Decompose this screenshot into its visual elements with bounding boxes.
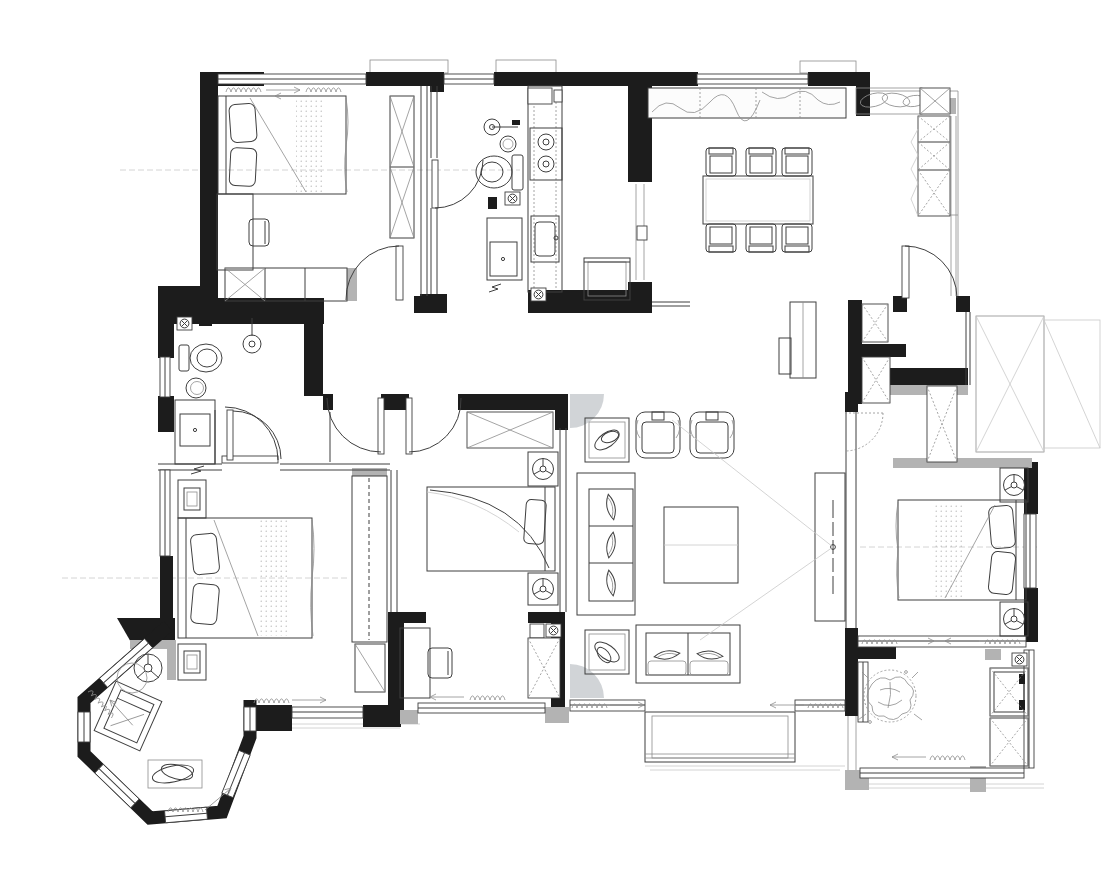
window-bedroom-tl [218,74,366,84]
floor-drain-icon [177,317,192,330]
shoe-cabinet-x-2 [862,357,890,403]
window-bath-left [160,357,170,397]
hallway-closet-x [467,412,553,448]
master-closet-x [927,386,957,462]
shoe-cabinet-x-1 [862,304,888,342]
hood-box-2 [554,90,562,102]
window-bedroom-left [160,470,170,556]
floor-plan-canvas: apartment-floor-plan [0,0,1112,882]
hood-box [528,88,552,104]
corner-cabinet-x [920,88,950,114]
window-balcony-bottom [860,768,1024,778]
floor-plan-drawing: apartment-floor-plan [0,0,1112,882]
window-bottom-band-2 [418,703,545,713]
window-bottom-band-1 [292,707,363,718]
window-dining-top [697,74,808,84]
floor-drain-icon [505,192,520,205]
floor-drain-icon [531,288,546,301]
marble-counter [648,88,846,121]
window-bath-top [444,74,494,84]
window-balcony-left [858,662,868,722]
floor-drain-icon [1012,653,1027,666]
spray-unit [488,197,497,209]
wall-unit [199,317,212,326]
